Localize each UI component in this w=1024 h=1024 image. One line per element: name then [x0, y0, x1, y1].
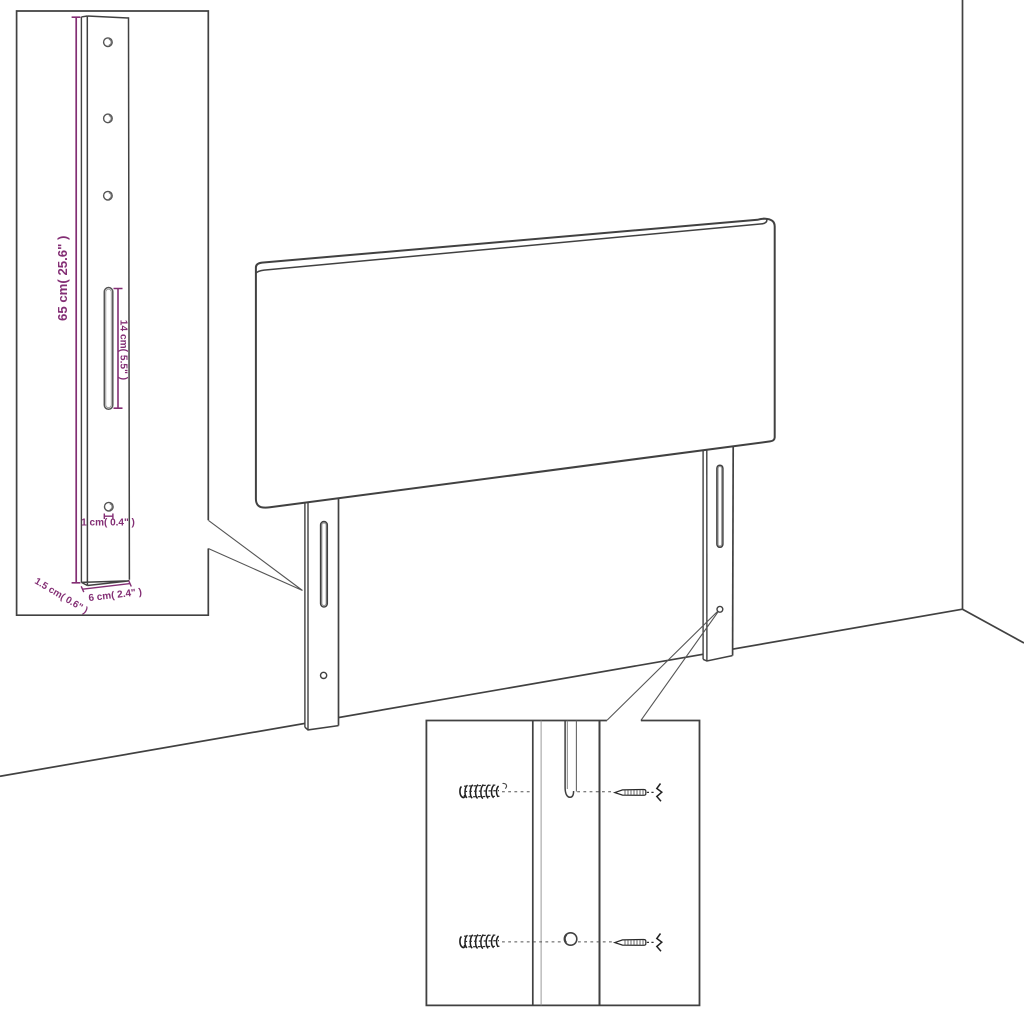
svg-text:1 cm( 0.4" ): 1 cm( 0.4" ): [81, 518, 135, 529]
svg-text:65 cm( 25.6" ): 65 cm( 25.6" ): [55, 236, 70, 321]
svg-text:14 cm( 5.5" ): 14 cm( 5.5" ): [118, 320, 129, 380]
